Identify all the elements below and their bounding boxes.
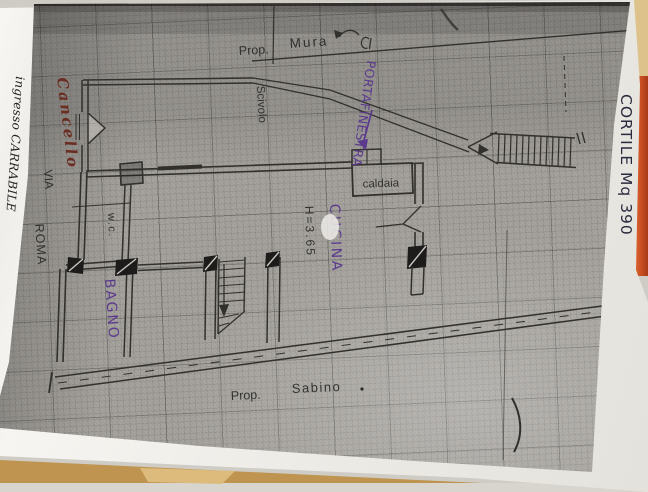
- stair-entry-arrowhead: [478, 144, 489, 155]
- label-cancello: Cancello: [53, 76, 82, 170]
- sabino-period-dot: [360, 387, 363, 390]
- floorplan-photo: Prop. Mura Scivolo VIA ROMA w.c. caldaia…: [0, 0, 648, 492]
- flash-glare-spot: [321, 214, 339, 240]
- street-wall: [82, 80, 88, 172]
- wall-bagno-to-stair: [138, 262, 203, 271]
- stair-end-ticks: [577, 132, 585, 144]
- label-height: H=3.65: [302, 206, 318, 257]
- label-wc: w.c.: [105, 212, 118, 238]
- internal-stair-steps: [219, 260, 245, 302]
- handwritten-a-mark: [361, 37, 371, 49]
- label-portafinestra: PORTAFINESTRA: [349, 60, 379, 168]
- label-mura: Mura: [289, 33, 329, 51]
- boundary-path: [55, 303, 628, 389]
- boundary-path-dashes: [58, 308, 626, 383]
- gate-triangle: [88, 113, 105, 144]
- plan-drawing: Prop. Mura Scivolo VIA ROMA w.c. caldaia…: [0, 0, 648, 492]
- ramp-top-wall: [83, 78, 253, 85]
- external-stair-rungs: [498, 135, 571, 168]
- stair-diagonal-cut: [218, 311, 245, 334]
- building-right-wall-lower: [411, 266, 424, 295]
- stair-pillar-left: [205, 261, 216, 340]
- building-right-wall-upper: [412, 163, 424, 204]
- dark-grid-line: [503, 230, 507, 460]
- bagno-right-wall: [124, 265, 133, 357]
- label-prop-top: Prop.: [238, 42, 269, 58]
- bagno-left-wall: [57, 269, 66, 362]
- label-cortile: CORTILE Mq 390: [617, 94, 635, 236]
- stair-pillar-right: [267, 257, 280, 343]
- window-segment: [158, 167, 202, 169]
- door-swing-symbol: [376, 206, 421, 232]
- pen-curve-mark: [512, 398, 520, 452]
- paper-crease-mark: [441, 9, 458, 30]
- label-bagno: BAGNO: [101, 278, 121, 340]
- label-scivolo: Scivolo: [254, 86, 268, 124]
- external-stair-rails: [490, 134, 576, 168]
- label-prop-bottom: Prop.: [231, 388, 261, 403]
- label-roma: ROMA: [32, 223, 49, 265]
- label-sabino: Sabino: [291, 379, 341, 396]
- label-via: VIA: [41, 169, 56, 189]
- dashed-boundary-line: [564, 56, 566, 112]
- wc-right-wall: [122, 185, 131, 262]
- boundary-vertical-line: [273, 6, 274, 64]
- wall-junction-box: [120, 162, 143, 185]
- label-ingresso: ingresso CARRABILE: [4, 76, 27, 212]
- building-left-wall: [78, 172, 87, 260]
- stair-arrowhead: [219, 304, 229, 317]
- path-end-tick: [49, 372, 52, 393]
- plan-linework: [49, 6, 648, 460]
- label-caldaia: caldaia: [362, 177, 399, 190]
